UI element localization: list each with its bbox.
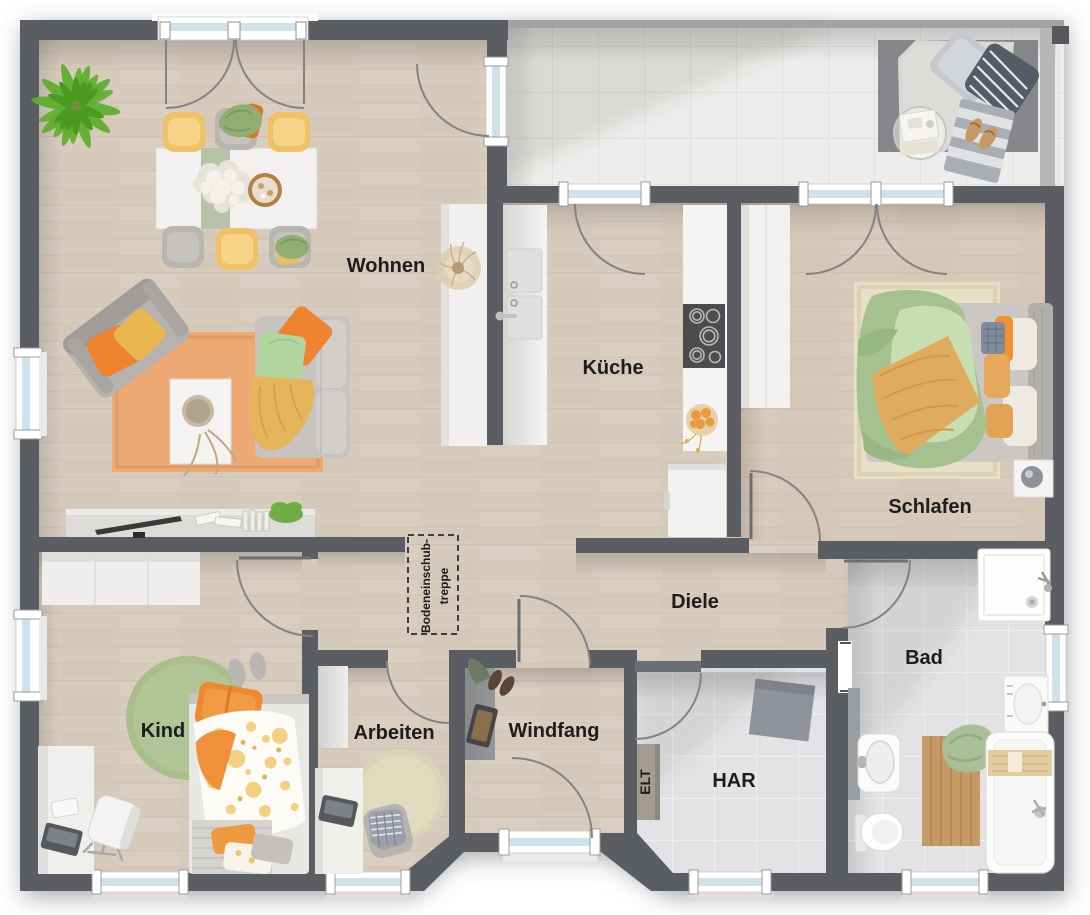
svg-text:Kind: Kind: [141, 720, 185, 742]
svg-text:ELT: ELT: [637, 769, 653, 795]
svg-text:Bad: Bad: [905, 647, 943, 669]
svg-text:Schlafen: Schlafen: [888, 496, 971, 518]
svg-text:Bodeneinschub-: Bodeneinschub-: [419, 539, 433, 633]
svg-text:treppe: treppe: [437, 567, 451, 604]
svg-text:Diele: Diele: [671, 591, 719, 613]
svg-text:Wohnen: Wohnen: [347, 255, 426, 277]
svg-text:Küche: Küche: [582, 357, 643, 379]
svg-text:Windfang: Windfang: [509, 720, 600, 742]
svg-text:HAR: HAR: [712, 770, 756, 792]
svg-text:Arbeiten: Arbeiten: [353, 722, 434, 744]
